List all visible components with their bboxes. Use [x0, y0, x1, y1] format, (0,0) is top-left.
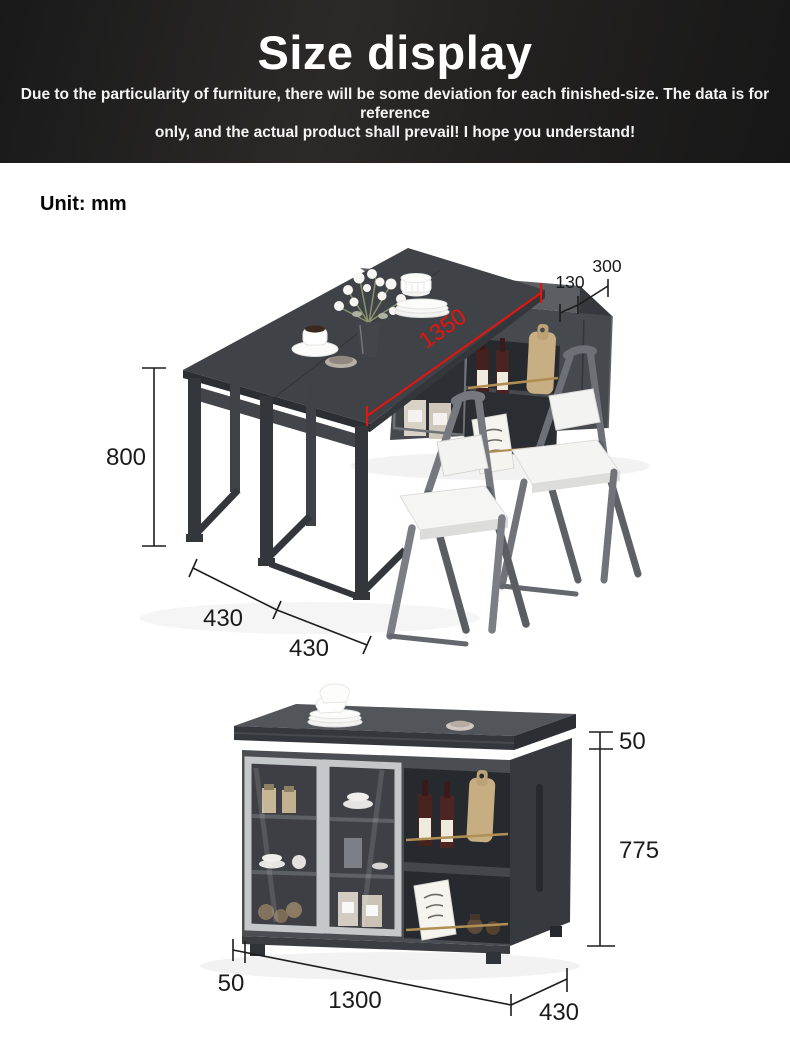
disclaimer-line-2: only, and the actual product shall preva… [11, 123, 779, 142]
dim-depth-label: 430 [539, 999, 579, 1026]
side-handle-groove [536, 784, 543, 892]
dim-sideboard-height: 50 775 [587, 728, 659, 946]
disclaimer-text: Due to the particularity of furniture, t… [11, 85, 779, 142]
sliding-glass-door-left [248, 760, 320, 930]
disclaimer-line-1: Due to the particularity of furniture, t… [11, 85, 779, 123]
dim-body-height-label: 775 [619, 837, 659, 864]
sideboard-illustration [200, 684, 580, 980]
open-shelf-section [404, 768, 510, 944]
coffee-bag [414, 880, 456, 940]
size-display-header: Size display Due to the particularity of… [0, 0, 790, 163]
unit-label: Unit: mm [40, 193, 127, 216]
dim-fold-back-label: 430 [289, 635, 329, 662]
sliding-glass-door-right [326, 763, 398, 933]
dim-cabinet-gap-label: 130 [555, 272, 584, 292]
plate-stack [308, 684, 362, 727]
dim-table-height: 800 [106, 368, 166, 546]
dim-width-label: 1300 [328, 987, 381, 1014]
dim-table-height-label: 800 [106, 444, 146, 471]
dim-cabinet-depth-label: 300 [592, 256, 621, 276]
page-title: Size display [0, 0, 790, 79]
dim-top-thickness-label: 50 [619, 728, 646, 755]
table-size-diagram: 1350 800 430 430 130 300 [60, 228, 720, 675]
dim-fold-front-label: 430 [203, 605, 243, 632]
dim-base-inset-label: 50 [218, 970, 245, 997]
sideboard-size-diagram: 50 775 50 1300 430 [130, 676, 690, 1028]
